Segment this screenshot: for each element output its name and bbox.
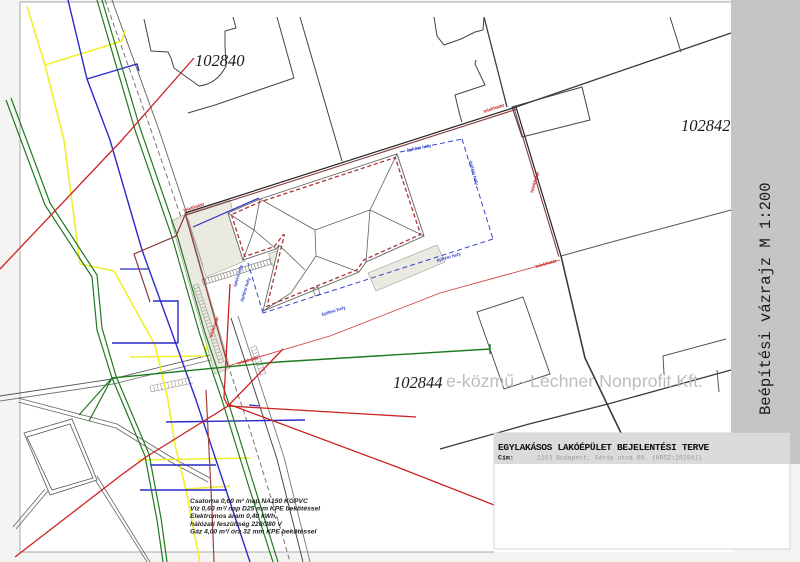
svg-text:Elektromos áram 0,40 kWh,: Elektromos áram 0,40 kWh, xyxy=(190,513,277,520)
svg-text:e-közmű - Lechner Nonprofit Kf: e-közmű - Lechner Nonprofit Kft. xyxy=(446,371,703,391)
svg-text:Víz 0,60 m³/ nap D25 mm KPE be: Víz 0,60 m³/ nap D25 mm KPE bekötéssel xyxy=(190,506,320,513)
svg-text:Gáz 4,00 m³/ óra 32 mm KPE bek: Gáz 4,00 m³/ óra 32 mm KPE bekötéssel xyxy=(190,528,317,535)
svg-text:hálózati feszültség 220/380 V: hálózati feszültség 220/380 V xyxy=(190,521,282,528)
svg-text:Csatorna 0,60 m³ /nap NA150 KG: Csatorna 0,60 m³ /nap NA150 KGPVC xyxy=(190,498,308,505)
svg-text:Cím:: Cím: xyxy=(498,455,514,462)
svg-text:102842: 102842 xyxy=(681,116,731,135)
svg-text:102844: 102844 xyxy=(393,373,443,392)
svg-text:102840: 102840 xyxy=(195,51,245,70)
svg-text:Beépítési vázrajz M 1:200: Beépítési vázrajz M 1:200 xyxy=(757,182,775,415)
svg-text:1163 Budapest, Gárda utca 60.: 1163 Budapest, Gárda utca 60. (HRSZ:1028… xyxy=(537,455,702,462)
svg-text:EGYLAKÁSOS LAKÓÉPÜLET BEJELENT: EGYLAKÁSOS LAKÓÉPÜLET BEJELENTÉSI TERVE xyxy=(498,442,709,453)
